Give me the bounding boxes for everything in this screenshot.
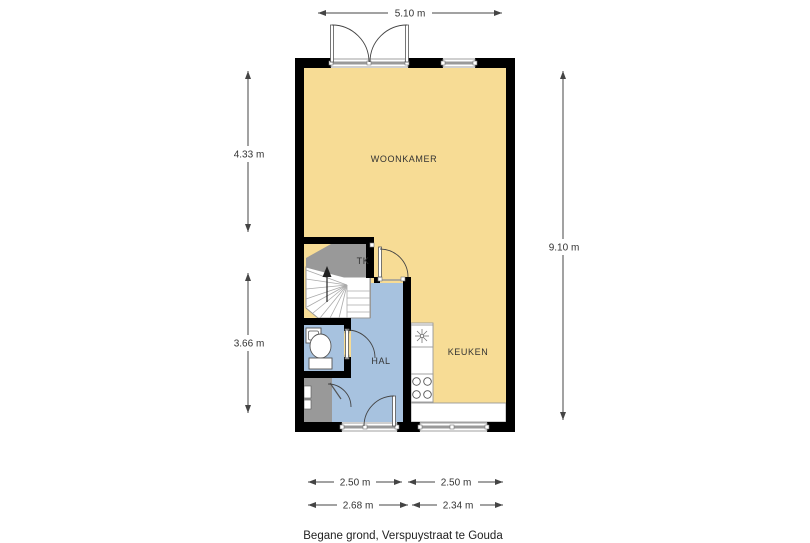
dimension-top: 5.10 m [318, 9, 502, 20]
dim-bottom-outer-left-label: 2.68 m [343, 501, 374, 512]
dim-bottom-inner-left-label: 2.50 m [340, 478, 371, 489]
dimension-right: 9.10 m [549, 71, 580, 420]
hal-label: HAL [371, 356, 390, 366]
wall-bottom-1 [295, 422, 342, 432]
wall-bottom-3 [487, 422, 515, 432]
floor-plan: WOONKAMER KEUKEN HAL TK 5.10 m 4.33 m 3.… [0, 0, 810, 543]
wall-left [295, 58, 304, 432]
wall-right [506, 58, 515, 432]
tk-label: TK [357, 256, 370, 266]
front-door-sill [342, 423, 397, 431]
dim-left-upper-label: 4.33 m [234, 150, 265, 161]
wall-hal-keuken [403, 277, 411, 432]
dimension-bottom-inner-right: 2.50 m [408, 478, 503, 489]
kitchen-sink-icon [415, 329, 429, 343]
dim-left-lower-label: 3.66 m [234, 339, 265, 350]
dimension-bottom-inner-left: 2.50 m [308, 478, 402, 489]
plan-title: Begane grond, Verspuystraat te Gouda [303, 530, 503, 542]
wall-top-3 [475, 58, 515, 68]
meter-panel-icon [304, 386, 311, 409]
dim-right-label: 9.10 m [549, 243, 580, 254]
woonkamer-label: WOONKAMER [371, 154, 437, 164]
wall-tk-top [304, 237, 374, 244]
top-window [443, 59, 475, 67]
toilet-icon [310, 334, 331, 358]
dim-top-label: 5.10 m [395, 9, 426, 20]
wall-wc-top [304, 318, 351, 325]
floor-plan-page: WOONKAMER KEUKEN HAL TK 5.10 m 4.33 m 3.… [0, 0, 810, 543]
dimension-bottom-outer-left: 2.68 m [308, 501, 408, 512]
dimension-left-upper: 4.33 m [234, 71, 265, 232]
wall-top-1 [295, 58, 331, 68]
french-doors [331, 25, 409, 62]
dim-bottom-inner-right-label: 2.50 m [441, 478, 472, 489]
dim-bottom-outer-right-label: 2.34 m [443, 501, 474, 512]
keuken-label: KEUKEN [448, 347, 489, 357]
wall-top-2 [408, 58, 443, 68]
dimension-bottom-outer-right: 2.34 m [412, 501, 503, 512]
wall-wc-bottom [304, 371, 351, 378]
dimension-left-lower: 3.66 m [234, 273, 265, 413]
